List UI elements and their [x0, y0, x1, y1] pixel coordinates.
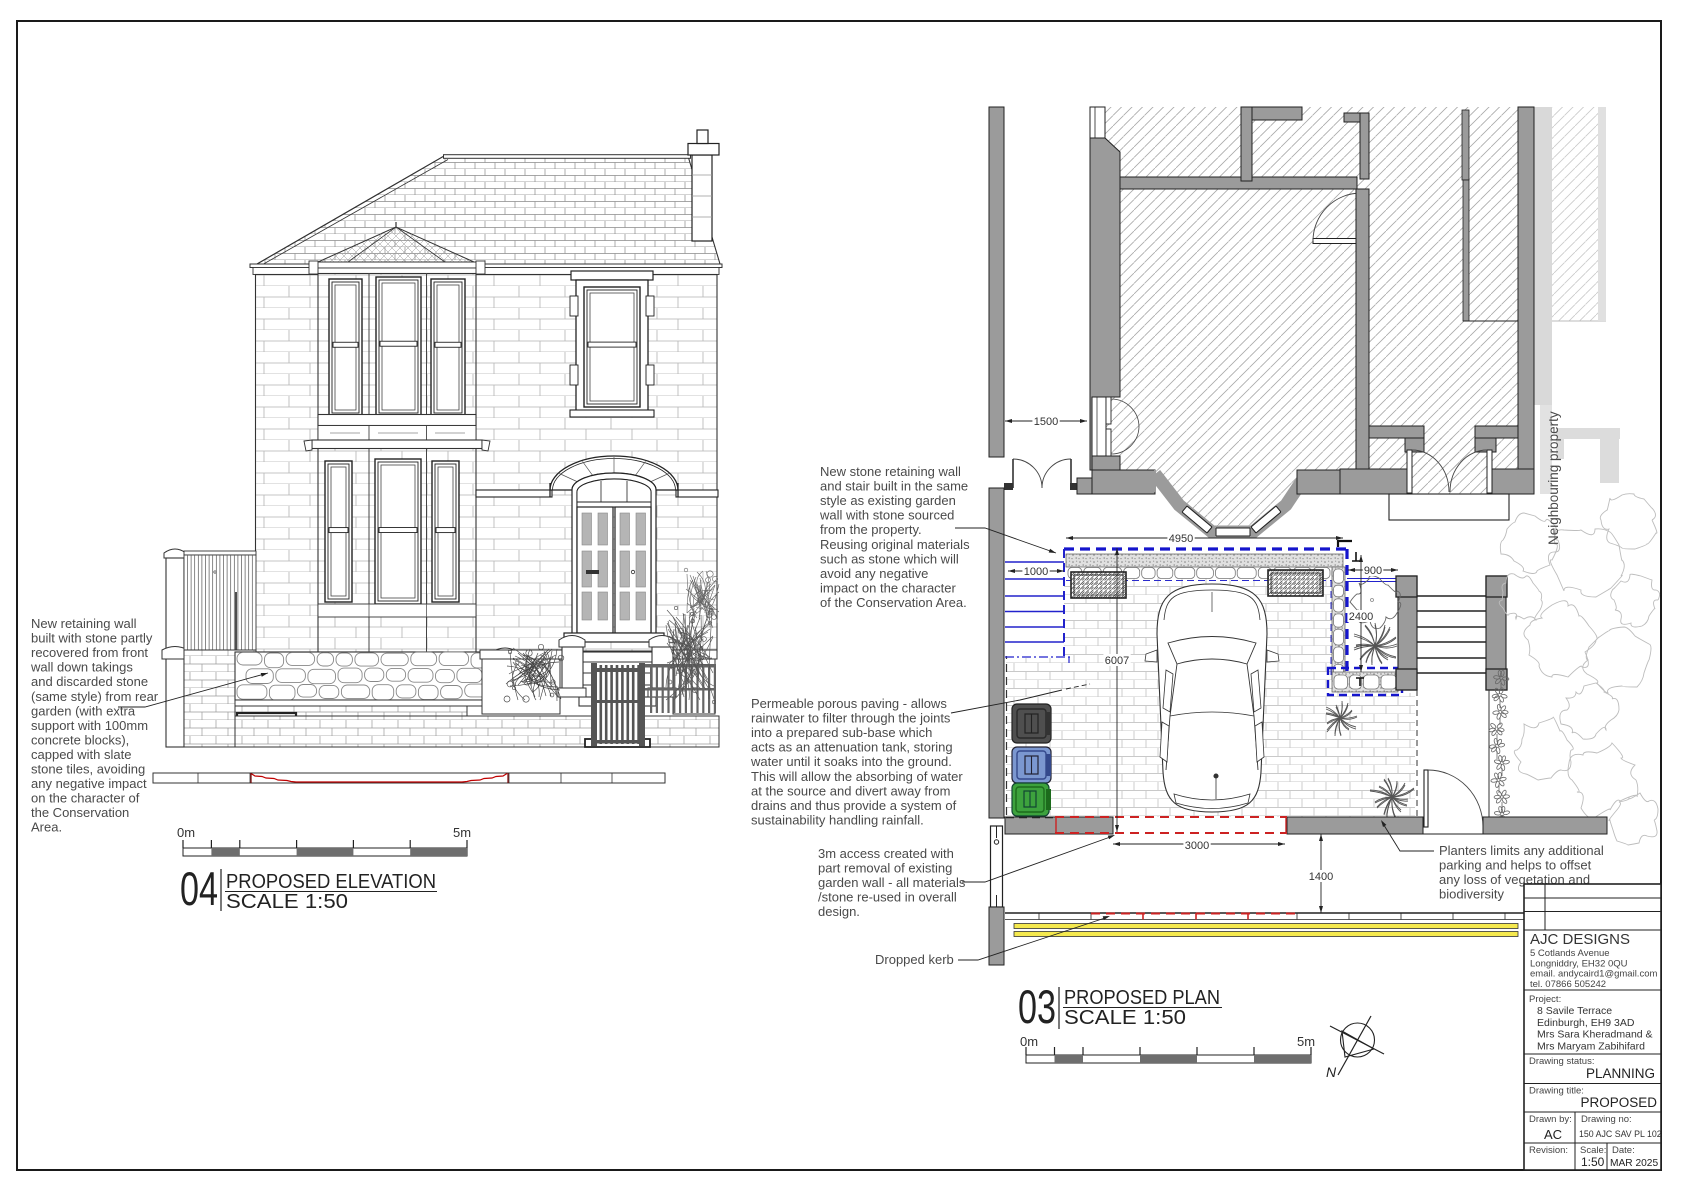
svg-text:4950: 4950	[1169, 533, 1193, 545]
svg-text:Dropped kerb: Dropped kerb	[875, 952, 954, 967]
svg-text:Permeable porous paving - allo: Permeable porous paving - allowsrainwate…	[750, 696, 963, 827]
svg-text:900: 900	[1364, 565, 1382, 577]
svg-text:AC: AC	[1544, 1127, 1562, 1142]
svg-text:1:50: 1:50	[1581, 1155, 1605, 1169]
svg-text:0m: 0m	[177, 825, 195, 840]
svg-text:0m: 0m	[1020, 1034, 1038, 1049]
svg-text:AJC DESIGNS: AJC DESIGNS	[1530, 931, 1630, 948]
svg-text:3000: 3000	[1185, 840, 1209, 852]
svg-text:N: N	[1326, 1064, 1337, 1080]
svg-text:5m: 5m	[1297, 1034, 1315, 1049]
svg-text:Date:: Date:	[1612, 1145, 1635, 1156]
svg-text:2400: 2400	[1349, 611, 1373, 623]
svg-text:03: 03	[1018, 980, 1056, 1033]
svg-text:1000: 1000	[1024, 566, 1048, 578]
svg-text:150 AJC SAV PL 102: 150 AJC SAV PL 102	[1579, 1129, 1662, 1139]
svg-text:Revision:: Revision:	[1529, 1145, 1568, 1156]
svg-text:1500: 1500	[1034, 416, 1058, 428]
svg-text:MAR 2025: MAR 2025	[1610, 1158, 1658, 1169]
svg-text:SCALE 1:50: SCALE 1:50	[226, 890, 348, 913]
svg-text:Neighbouring property: Neighbouring property	[1546, 411, 1561, 545]
svg-text:Drawing status:: Drawing status:	[1529, 1056, 1594, 1067]
svg-text:SCALE 1:50: SCALE 1:50	[1064, 1006, 1186, 1029]
svg-text:Drawing title:: Drawing title:	[1529, 1086, 1584, 1097]
svg-text:PROPOSED: PROPOSED	[1580, 1095, 1657, 1110]
svg-text:5m: 5m	[453, 825, 471, 840]
svg-text:New stone retaining walland st: New stone retaining walland stair built …	[819, 464, 970, 610]
svg-text:1400: 1400	[1309, 871, 1333, 883]
svg-text:PLANNING: PLANNING	[1586, 1066, 1655, 1081]
svg-text:04: 04	[180, 862, 218, 915]
svg-text:Drawn by:: Drawn by:	[1529, 1114, 1572, 1125]
svg-text:6007: 6007	[1105, 655, 1129, 667]
svg-text:Drawing no:: Drawing no:	[1581, 1114, 1632, 1125]
svg-text:Project:: Project:	[1529, 994, 1561, 1005]
